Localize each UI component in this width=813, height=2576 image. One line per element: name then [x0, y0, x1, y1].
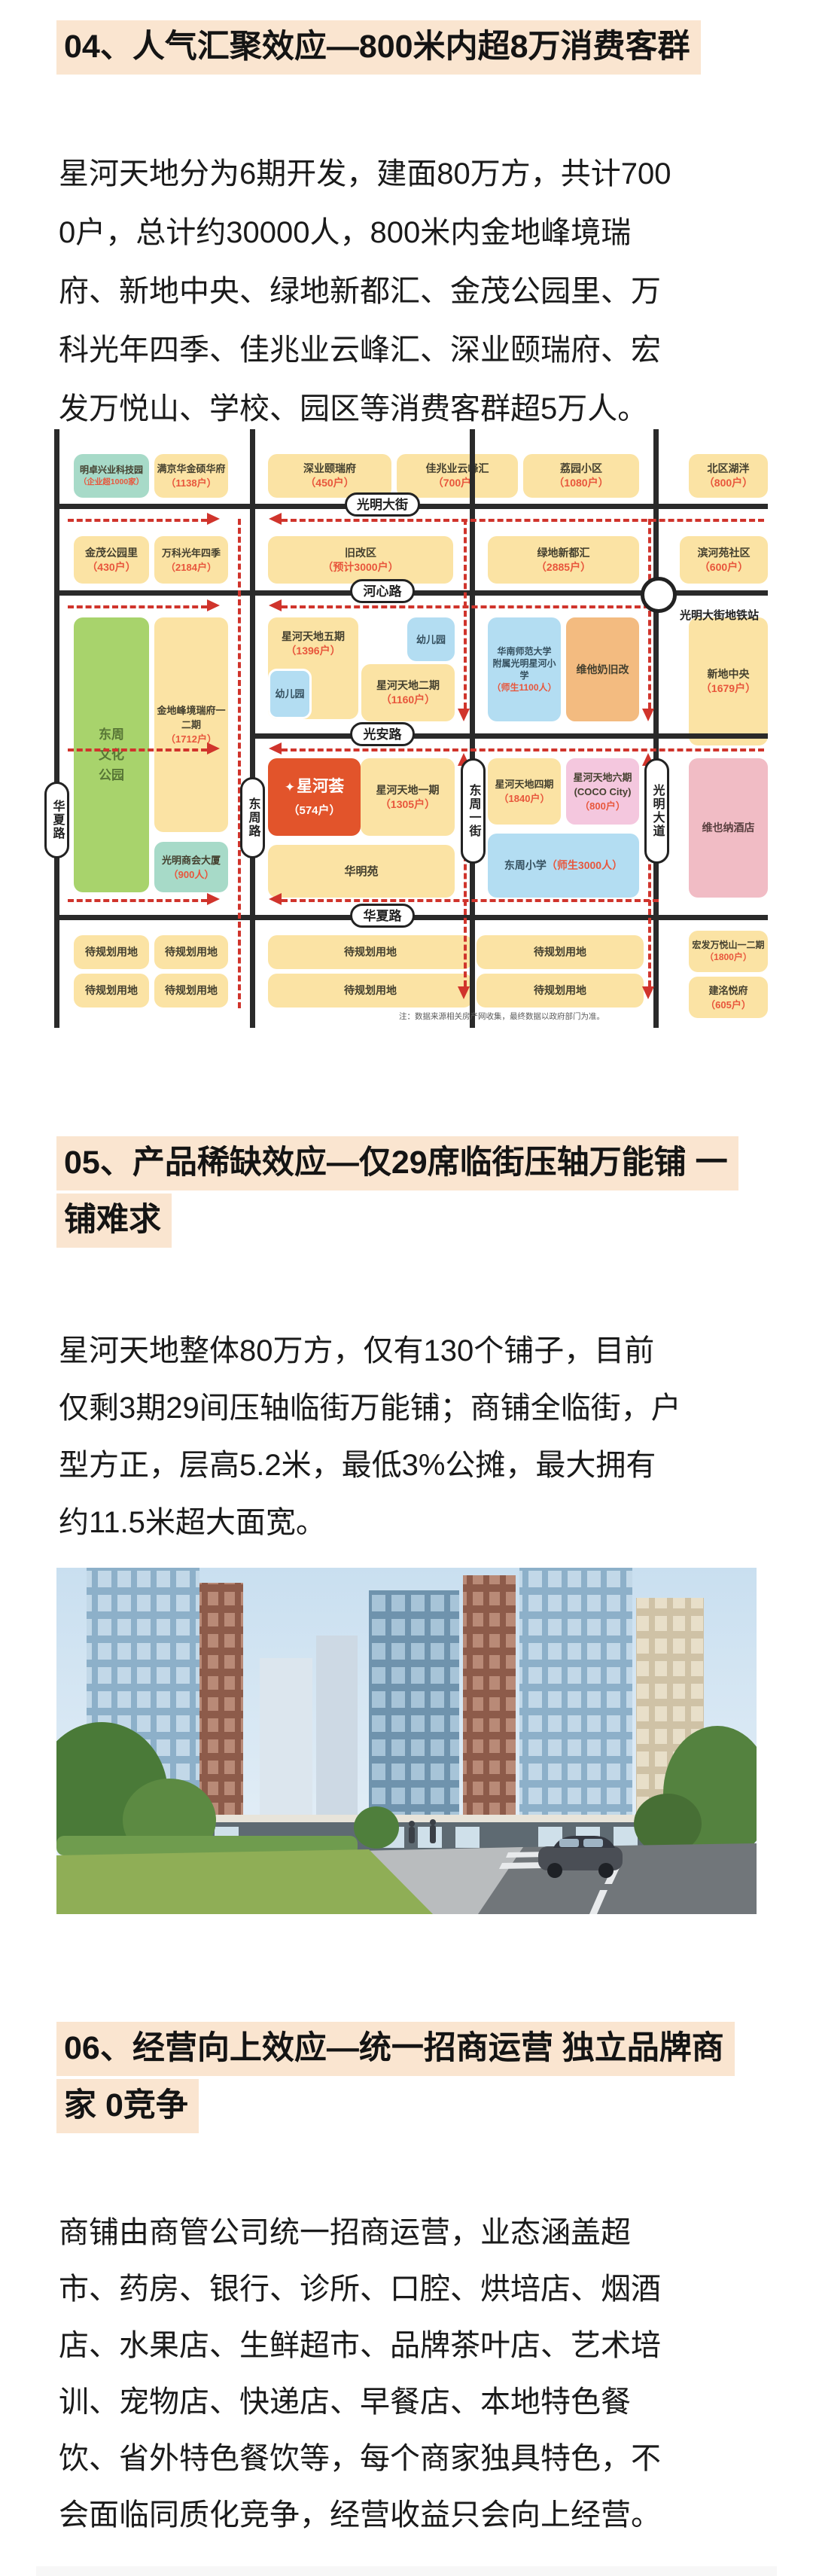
- road-label-dongzhou-road: 东周路: [240, 777, 265, 858]
- section-06-heading-line1: 06、经营向上效应—统一招商运营 独立品牌商: [56, 2022, 735, 2076]
- building-rendering-photo[interactable]: [56, 1568, 757, 1914]
- paragraph-line: 科光年四季、佳兆业云峰汇、深业颐瑞府、宏: [59, 321, 774, 380]
- dashed-line-vertical: [464, 519, 467, 709]
- brick-tower: [463, 1575, 516, 1820]
- map-block-tech-park: 明卓兴业科技园 （企业超1000家）: [74, 454, 149, 498]
- tree: [354, 1806, 399, 1849]
- map-block: 滨河苑社区 （600户）: [680, 536, 768, 584]
- map-block: 星河天地一期 （1305户）: [361, 758, 455, 836]
- paragraph-line: 府、新地中央、绿地新都汇、金茂公园里、万: [59, 262, 774, 321]
- road-label-guangming-street: 光明大街: [345, 492, 420, 517]
- dash-arrow-down-icon: [458, 709, 470, 721]
- map-block-pending: 待规划用地: [154, 935, 228, 969]
- metro-station-icon: [641, 577, 677, 613]
- metro-station-label: 光明大街地铁站: [680, 607, 759, 623]
- dash-arrow-left-icon: [269, 742, 282, 755]
- map-block: 万科光年四季 （2184户）: [154, 536, 228, 584]
- map-block-pending: 待规划用地: [268, 974, 473, 1008]
- dashed-line: [282, 605, 659, 608]
- map-block: 荔园小区 （1080户）: [523, 454, 639, 498]
- paragraph-line: 市、药房、银行、诊所、口腔、烘培店、烟酒: [59, 2261, 774, 2318]
- paragraph-line: 仅剩3期29间压轴临街万能铺；商铺全临街，户: [59, 1379, 774, 1437]
- section-06-heading: 06、经营向上效应—统一招商运营 独立品牌商 家 0竞争: [56, 2020, 735, 2134]
- dash-arrow-right-icon: [207, 513, 220, 525]
- paragraph-line: 约11.5米超大面宽。: [59, 1494, 774, 1551]
- paragraph-line: 0户，总计约30000人，800米内金地峰境瑞: [59, 203, 774, 262]
- paragraph-line: 星河天地分为6期开发，建面80万方，共计700: [59, 145, 774, 203]
- map-block: 满京华金硕华府 （1138户）: [154, 454, 228, 498]
- dashed-line: [68, 899, 207, 902]
- dash-arrow-right-icon: [207, 599, 220, 611]
- map-block: 旧改区 （预计3000户）: [268, 536, 453, 584]
- map-block-pending: 待规划用地: [74, 935, 149, 969]
- dashed-line: [282, 899, 659, 902]
- dashed-line: [282, 748, 764, 751]
- road-label-guangming-avenue: 光明大道: [644, 758, 669, 864]
- road-huaxia-vertical: [54, 429, 59, 1028]
- section-05-heading-line2: 铺难求: [56, 1193, 172, 1248]
- paragraph-line: 型方正，层高5.2米，最低3%公摊，最大拥有: [59, 1437, 774, 1494]
- dash-arrow-left-icon: [269, 893, 282, 905]
- map-block: 佳兆业云峰汇 （700户）: [397, 454, 518, 498]
- star-icon: ✦: [285, 780, 295, 794]
- map-block-kindergarten: 幼儿园: [268, 669, 312, 719]
- map-block-pending: 待规划用地: [268, 935, 473, 969]
- paragraph-line: 商铺由商管公司统一招商运营，业态涵盖超: [59, 2205, 774, 2261]
- brick-tower: [199, 1583, 243, 1828]
- road-label-huaxia-road-vertical: 华夏路: [44, 782, 69, 858]
- map-block: 维他奶旧改: [566, 617, 639, 721]
- distant-tower: [260, 1658, 312, 1824]
- dashed-line: [68, 748, 207, 751]
- section-05-heading: 05、产品稀缺效应—仅29席临街压轴万能铺 一 铺难求: [56, 1134, 738, 1248]
- map-block: 宏发万悦山一二期 （1800户）: [689, 931, 768, 972]
- map-block: 光明商会大厦 （900人）: [154, 842, 228, 892]
- dash-arrow-down-icon: [642, 709, 654, 721]
- map-block: 金茂公园里 （430户）: [74, 536, 149, 584]
- paragraph-line: 星河天地整体80万方，仅有130个铺子，目前: [59, 1322, 774, 1379]
- dash-arrow-right-icon: [207, 742, 220, 755]
- dash-arrow-left-icon: [269, 599, 282, 611]
- dashed-line-vertical: [648, 519, 651, 709]
- map-block-pending: 待规划用地: [154, 974, 228, 1008]
- section-05-paragraph: 星河天地整体80万方，仅有130个铺子，目前 仅剩3期29间压轴临街万能铺；商铺…: [59, 1322, 774, 1551]
- article-page: 04、人气汇聚效应—800米内超8万消费客群 星河天地分为6期开发，建面80万方…: [0, 0, 813, 2576]
- map-block: 维也纳酒店: [689, 758, 768, 898]
- road-label-guangan-road: 光安路: [350, 722, 415, 746]
- section-04-heading-text: 04、人气汇聚效应—800米内超8万消费客群: [56, 20, 701, 75]
- location-map-image[interactable]: 明卓兴业科技园 （企业超1000家） 满京华金硕华府 （1138户） 深业颐瑞府…: [56, 429, 768, 1028]
- road-label-dongzhou-first-street: 东周一街: [461, 758, 486, 864]
- dash-arrow-right-icon: [207, 893, 220, 905]
- map-block-kindergarten: 幼儿园: [407, 617, 455, 661]
- map-block: 深业颐瑞府 （450户）: [268, 454, 391, 498]
- section-05-heading-line1: 05、产品稀缺效应—仅29席临街压轴万能铺 一: [56, 1136, 738, 1190]
- dashed-line: [282, 519, 764, 522]
- dashed-line: [68, 605, 207, 608]
- paragraph-line: 会面临同质化竞争，经营收益只会向上经营。: [59, 2487, 774, 2544]
- lawn: [56, 1849, 433, 1914]
- map-block-pending: 待规划用地: [74, 974, 149, 1008]
- dashed-line: [68, 519, 207, 522]
- map-block-school: 东周小学 （师生3000人）: [488, 834, 639, 898]
- section-06-paragraph: 商铺由商管公司统一招商运营，业态涵盖超 市、药房、银行、诊所、口腔、烘培店、烟酒…: [59, 2205, 774, 2544]
- paragraph-line: 店、水果店、生鲜超市、品牌茶叶店、艺术培: [59, 2318, 774, 2374]
- map-block: 绿地新都汇 （2885户）: [488, 536, 639, 584]
- dash-arrow-down-icon: [642, 986, 654, 999]
- map-block: 北区湖泮 （800户）: [689, 454, 768, 498]
- road-label-hexin-road: 河心路: [350, 579, 415, 603]
- map-block-school: 华南师范大学 附属光明星河小学 （师生1100人）: [488, 617, 561, 721]
- map-note: 注：数据来源相关房产网收集，最终数据以政府部门为准。: [399, 1011, 604, 1022]
- section-04-paragraph: 星河天地分为6期开发，建面80万方，共计700 0户，总计约30000人，800…: [59, 145, 774, 438]
- map-block-pending: 待规划用地: [477, 974, 644, 1008]
- section-06-heading-line2: 家 0竞争: [56, 2079, 199, 2133]
- map-block: 金地峰境瑞府一二期 （1712户）: [154, 617, 228, 832]
- paragraph-line: 训、宠物店、快递店、早餐店、本地特色餐: [59, 2374, 774, 2431]
- road-dongzhou: [250, 429, 255, 1028]
- map-block: 华明苑: [268, 845, 455, 898]
- dash-arrow-left-icon: [269, 513, 282, 525]
- dashed-line-vertical: [238, 519, 241, 1008]
- glass-tower: [369, 1590, 459, 1820]
- distant-tower: [316, 1636, 358, 1824]
- map-block: 星河天地四期 （1840户）: [488, 758, 561, 825]
- paragraph-line: 饮、省外特色餐饮等，每个商家独具特色，不: [59, 2431, 774, 2487]
- map-block: 星河天地六期 (COCO City) （800户）: [566, 758, 639, 825]
- dash-arrow-down-icon: [458, 986, 470, 999]
- next-image-top-edge: [36, 2566, 777, 2576]
- map-block-park: 东周 文化 公园: [74, 617, 149, 892]
- section-04-heading: 04、人气汇聚效应—800米内超8万消费客群: [56, 18, 701, 75]
- road-label-huaxia-road: 华夏路: [350, 904, 415, 928]
- map-block: 星河天地二期 （1160户）: [361, 664, 455, 721]
- map-block: 新地中央 （1679户）: [689, 617, 768, 745]
- glass-tower: [519, 1568, 632, 1818]
- map-block-pending: 待规划用地: [477, 935, 644, 969]
- map-block: 建洺悦府 （605户）: [689, 977, 768, 1018]
- road-guangan: [252, 733, 768, 739]
- map-block-xinghehui: ✦星河荟 （574户）: [268, 758, 361, 836]
